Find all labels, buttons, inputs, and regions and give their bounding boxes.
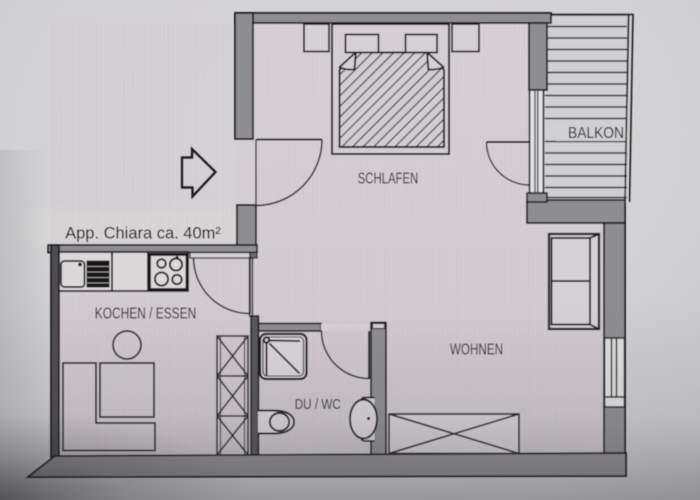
svg-text:BALKON: BALKON bbox=[568, 125, 624, 142]
svg-text:SCHLAFEN: SCHLAFEN bbox=[358, 169, 419, 187]
svg-text:App. Chiara ca. 40m²: App. Chiara ca. 40m² bbox=[65, 223, 221, 242]
